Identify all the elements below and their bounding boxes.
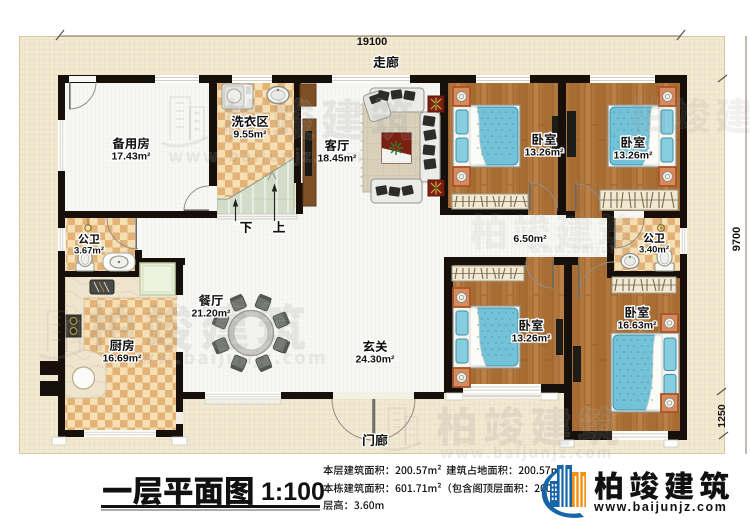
svg-text:16.63m²: 16.63m² [617, 320, 657, 332]
svg-text:9700: 9700 [731, 227, 743, 251]
svg-text:18.45m²: 18.45m² [317, 153, 357, 165]
svg-text:6.50m²: 6.50m² [513, 233, 547, 245]
svg-text:13.26m²: 13.26m² [524, 147, 564, 159]
svg-text:24.30m²: 24.30m² [355, 354, 395, 366]
svg-text:9.55m²: 9.55m² [233, 129, 267, 141]
svg-text:21.20m²: 21.20m² [191, 308, 231, 320]
svg-text:3.40m²: 3.40m² [639, 245, 669, 256]
svg-text:3.67m²: 3.67m² [74, 246, 104, 257]
svg-text:1:100: 1:100 [261, 478, 325, 506]
svg-text:17.43m²: 17.43m² [111, 151, 151, 163]
svg-text:19100: 19100 [357, 36, 388, 48]
svg-text:1250: 1250 [716, 404, 728, 428]
svg-text:13.26m²: 13.26m² [613, 150, 653, 162]
svg-text:www.baijunjz.com: www.baijunjz.com [593, 500, 727, 514]
svg-text:16.69m²: 16.69m² [102, 353, 142, 365]
svg-text:13.26m²: 13.26m² [511, 333, 551, 345]
